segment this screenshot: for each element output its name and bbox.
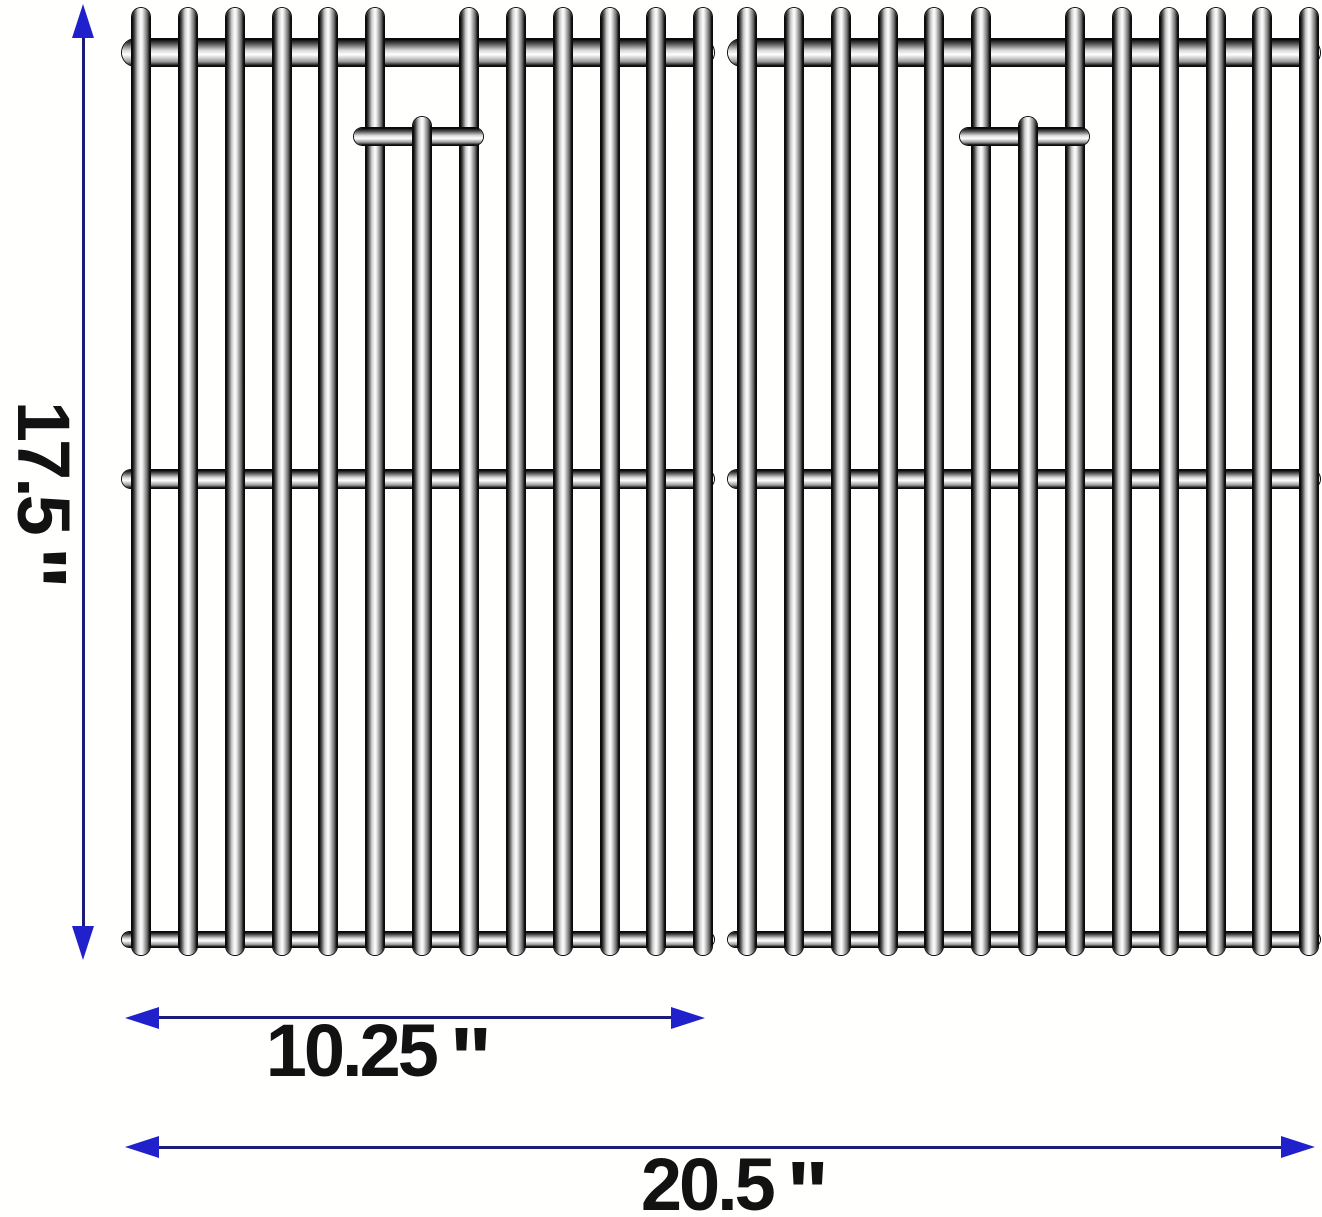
grate-bar: [832, 8, 850, 955]
inch-mark: ": [449, 1009, 492, 1110]
grate-bar: [273, 8, 291, 955]
arrow-down-icon: [72, 926, 94, 960]
grate-bar: [1300, 8, 1318, 955]
hanger-rod: [413, 117, 431, 955]
total-width-dimension-label: 20.5": [535, 1148, 935, 1217]
grate-bar: [554, 8, 572, 955]
grate-bar: [1160, 8, 1178, 955]
grate-width-dimension-label: 10.25": [179, 1014, 579, 1106]
grate-bar: [319, 8, 337, 955]
grate-width-value: 10.25: [266, 1009, 436, 1092]
grate-bar: [1207, 8, 1225, 955]
grate-bar: [1113, 8, 1131, 955]
grate-bar: [460, 8, 478, 955]
product-dimension-diagram: 17.5" 10.25" 20.5": [0, 0, 1322, 1217]
grate-bar: [785, 8, 803, 955]
arrow-right-icon: [671, 1007, 705, 1029]
inch-mark: ": [786, 1143, 829, 1217]
grate-bar: [925, 8, 943, 955]
grate-bar: [179, 8, 197, 955]
grate-bar: [972, 8, 990, 955]
grate-bar: [694, 8, 712, 955]
arrow-up-icon: [72, 4, 94, 38]
height-dimension-label: 17.5": [0, 325, 80, 665]
grate-bar: [1066, 8, 1084, 955]
arrow-left-icon: [125, 1007, 159, 1029]
grate-bar: [601, 8, 619, 955]
grate-bar: [226, 8, 244, 955]
hanger-rod: [1019, 117, 1037, 955]
grate-bar: [366, 8, 384, 955]
grate-rail-top: [122, 39, 714, 66]
grate-bar: [647, 8, 665, 955]
grate-rail-top: [728, 39, 1320, 66]
arrow-right-icon: [1281, 1136, 1315, 1158]
inch-mark: ": [0, 546, 85, 589]
grate-bar: [1253, 8, 1271, 955]
grate-bar: [132, 8, 150, 955]
arrow-left-icon: [125, 1136, 159, 1158]
grate-bar: [879, 8, 897, 955]
total-width-value: 20.5: [641, 1143, 773, 1217]
height-value: 17.5: [2, 401, 85, 533]
grate-bar: [507, 8, 525, 955]
grate-bar: [738, 8, 756, 955]
